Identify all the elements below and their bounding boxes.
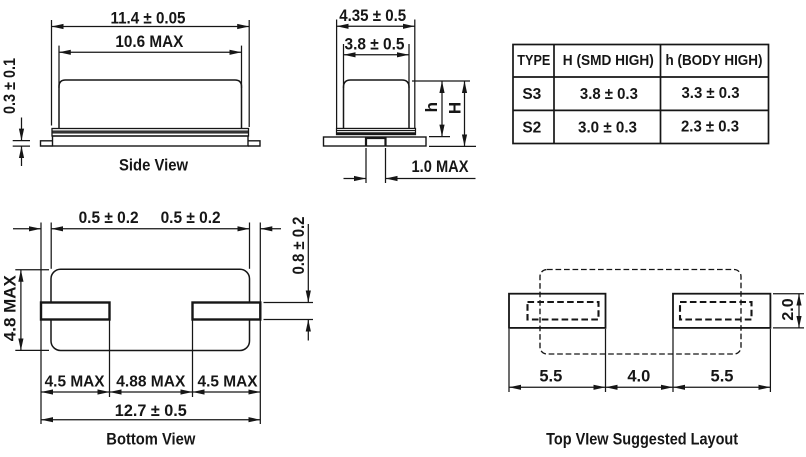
svg-text:4.88 MAX: 4.88 MAX bbox=[116, 373, 185, 390]
svg-text:2.3 ± 0.3: 2.3 ± 0.3 bbox=[681, 118, 739, 135]
svg-text:11.4 ± 0.05: 11.4 ± 0.05 bbox=[111, 10, 186, 28]
svg-text:4.0: 4.0 bbox=[627, 368, 650, 386]
svg-text:H: H bbox=[445, 102, 464, 114]
svg-text:S3: S3 bbox=[522, 86, 541, 103]
svg-text:2.0: 2.0 bbox=[780, 298, 797, 320]
svg-text:3.8 ± 0.5: 3.8 ± 0.5 bbox=[345, 35, 405, 53]
svg-text:3.3 ± 0.3: 3.3 ± 0.3 bbox=[682, 85, 740, 102]
svg-text:1.0 MAX: 1.0 MAX bbox=[412, 158, 469, 176]
svg-text:3.8 ± 0.3: 3.8 ± 0.3 bbox=[580, 86, 638, 103]
svg-text:TYPE: TYPE bbox=[517, 52, 550, 69]
svg-text:3.0 ± 0.3: 3.0 ± 0.3 bbox=[578, 119, 637, 136]
svg-text:0.3 ± 0.1: 0.3 ± 0.1 bbox=[1, 58, 19, 114]
svg-text:h: h bbox=[422, 102, 441, 112]
svg-text:Side View: Side View bbox=[119, 156, 188, 174]
svg-text:5.5: 5.5 bbox=[539, 368, 562, 386]
svg-text:0.5 ± 0.2: 0.5 ± 0.2 bbox=[161, 209, 221, 227]
svg-text:4.8 MAX: 4.8 MAX bbox=[2, 275, 20, 341]
svg-text:4.35 ± 0.5: 4.35 ± 0.5 bbox=[339, 7, 406, 25]
svg-text:4.5 MAX: 4.5 MAX bbox=[45, 373, 105, 390]
svg-text:Top VIew Suggested Layout: Top VIew Suggested Layout bbox=[546, 431, 738, 449]
svg-text:10.6 MAX: 10.6 MAX bbox=[115, 33, 183, 51]
svg-text:h (BODY HIGH): h (BODY HIGH) bbox=[666, 52, 763, 69]
svg-text:12.7 ± 0.5: 12.7 ± 0.5 bbox=[115, 402, 187, 420]
svg-text:H (SMD HIGH): H (SMD HIGH) bbox=[563, 52, 654, 69]
svg-text:0.8 ± 0.2: 0.8 ± 0.2 bbox=[290, 217, 308, 275]
svg-text:0.5 ± 0.2: 0.5 ± 0.2 bbox=[79, 209, 139, 227]
svg-text:S2: S2 bbox=[522, 119, 541, 136]
svg-text:4.5 MAX: 4.5 MAX bbox=[198, 373, 258, 390]
svg-text:5.5: 5.5 bbox=[711, 368, 734, 386]
svg-text:Bottom View: Bottom View bbox=[106, 431, 195, 449]
